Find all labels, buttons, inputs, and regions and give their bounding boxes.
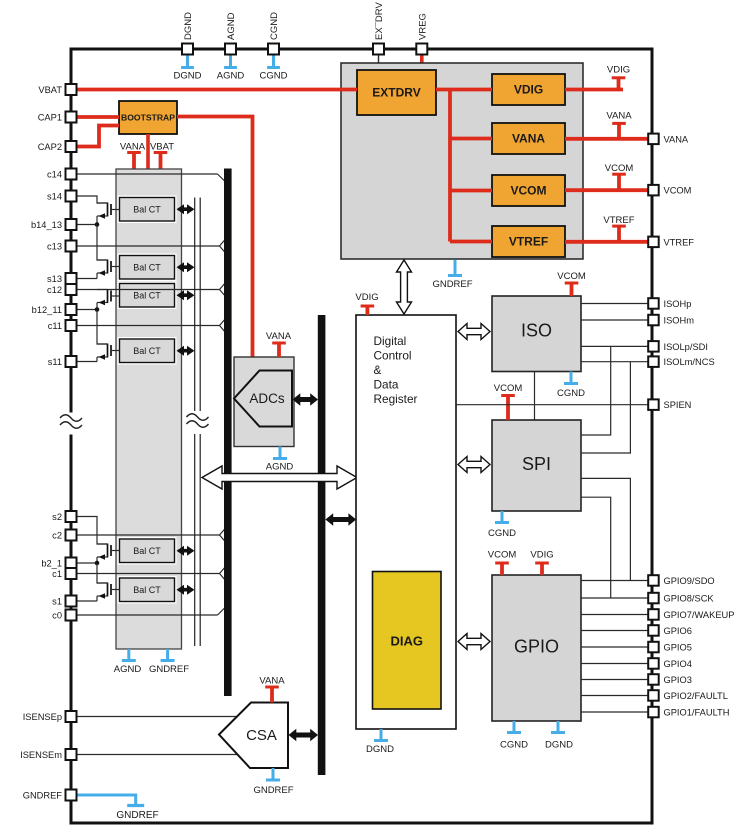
svg-text:CAP2: CAP2	[38, 142, 62, 152]
svg-text:DGND: DGND	[183, 12, 194, 40]
svg-text:VDIG: VDIG	[514, 83, 543, 97]
svg-text:c2: c2	[52, 531, 62, 541]
svg-text:VCOM: VCOM	[664, 186, 692, 196]
svg-text:CGND: CGND	[488, 528, 516, 539]
svg-text:VCOM: VCOM	[557, 271, 586, 282]
svg-text:DGND: DGND	[366, 744, 394, 755]
svg-text:AGND: AGND	[266, 462, 294, 473]
svg-text:GPIO2/FAULTL: GPIO2/FAULTL	[664, 691, 728, 701]
svg-text:CGND: CGND	[269, 12, 280, 40]
svg-text:VDIG: VDIG	[607, 65, 630, 76]
svg-text:AGND: AGND	[114, 664, 142, 675]
svg-text:c13: c13	[47, 242, 62, 252]
svg-text:VANA: VANA	[664, 134, 689, 144]
svg-text:ISENSEm: ISENSEm	[20, 750, 62, 760]
svg-text:VCOM: VCOM	[511, 184, 547, 198]
svg-text:CGND: CGND	[557, 388, 585, 399]
svg-text:c11: c11	[48, 321, 62, 331]
svg-text:SPIEN: SPIEN	[664, 400, 692, 410]
svg-text:Digital: Digital	[374, 334, 407, 348]
svg-text:BOOTSTRAP: BOOTSTRAP	[121, 113, 175, 123]
svg-text:DGND: DGND	[545, 740, 573, 751]
svg-text:ISENSEp: ISENSEp	[23, 712, 62, 722]
svg-text:Bal CT: Bal CT	[133, 263, 161, 273]
svg-text:CAP1: CAP1	[38, 113, 62, 123]
svg-text:VBAT: VBAT	[150, 142, 174, 153]
svg-text:s1: s1	[52, 597, 62, 607]
svg-text:SPI: SPI	[522, 454, 551, 474]
svg-text:s14: s14	[47, 192, 62, 202]
svg-text:ISOLm/NCS: ISOLm/NCS	[664, 357, 715, 367]
svg-text:s2: s2	[52, 512, 62, 522]
svg-text:VANA: VANA	[120, 142, 146, 153]
svg-text:Register: Register	[374, 392, 418, 406]
svg-text:b2_1: b2_1	[41, 559, 62, 569]
svg-text:CGND: CGND	[260, 71, 288, 82]
svg-text:Data: Data	[374, 378, 399, 392]
svg-text:VANA: VANA	[266, 331, 292, 342]
svg-text:GNDREF: GNDREF	[253, 785, 293, 796]
svg-text:b12_11: b12_11	[32, 305, 62, 315]
svg-text:EXTDRV: EXTDRV	[372, 86, 420, 100]
svg-text:VANA: VANA	[259, 676, 285, 687]
svg-text:GPIO5: GPIO5	[664, 643, 692, 653]
svg-text:c0: c0	[52, 611, 62, 621]
svg-text:VTREF: VTREF	[664, 237, 695, 247]
svg-text:VDIG: VDIG	[530, 550, 553, 561]
svg-text:GPIO4: GPIO4	[664, 659, 692, 669]
svg-text:c14: c14	[47, 170, 62, 180]
svg-text:GPIO1/FAULTH: GPIO1/FAULTH	[664, 708, 730, 718]
svg-text:VANA: VANA	[512, 132, 545, 146]
svg-text:&: &	[374, 363, 382, 377]
svg-text:GPIO9/SDO: GPIO9/SDO	[664, 576, 715, 586]
svg-text:VDIG: VDIG	[355, 292, 378, 303]
svg-text:ADCs: ADCs	[249, 391, 285, 406]
svg-text:VCOM: VCOM	[488, 550, 517, 561]
svg-text:VCOM: VCOM	[494, 383, 523, 394]
svg-text:GPIO7/WAKEUP: GPIO7/WAKEUP	[664, 610, 735, 620]
svg-text:VREG: VREG	[417, 13, 428, 40]
svg-text:AGND: AGND	[217, 71, 245, 82]
svg-text:Bal CT: Bal CT	[133, 205, 161, 215]
svg-text:c1: c1	[52, 569, 62, 579]
svg-text:VTREF: VTREF	[603, 215, 634, 226]
svg-text:CSA: CSA	[246, 727, 277, 744]
svg-text:s13: s13	[47, 274, 62, 284]
svg-text:GNDREF: GNDREF	[23, 791, 63, 801]
svg-text:GPIO8/SCK: GPIO8/SCK	[664, 594, 715, 604]
svg-text:s11: s11	[48, 357, 62, 367]
svg-text:EX¯DRV: EX¯DRV	[374, 2, 385, 40]
svg-text:VBAT: VBAT	[38, 85, 62, 95]
svg-text:GPIO: GPIO	[514, 637, 559, 657]
svg-text:VTREF: VTREF	[509, 235, 548, 249]
svg-text:VANA: VANA	[606, 110, 632, 121]
svg-text:b14_13: b14_13	[31, 220, 62, 230]
svg-text:ISOHm: ISOHm	[664, 316, 695, 326]
svg-text:ISO: ISO	[521, 321, 552, 341]
svg-text:GPIO3: GPIO3	[664, 675, 692, 685]
svg-text:CGND: CGND	[500, 740, 528, 751]
svg-text:Bal CT: Bal CT	[133, 346, 161, 356]
svg-text:Bal CT: Bal CT	[133, 585, 161, 595]
svg-text:DGND: DGND	[174, 71, 202, 82]
svg-text:c12: c12	[47, 285, 62, 295]
svg-text:DIAG: DIAG	[390, 634, 423, 649]
svg-text:Control: Control	[374, 348, 412, 362]
svg-text:GNDREF: GNDREF	[432, 279, 472, 290]
svg-text:ISOLp/SDI: ISOLp/SDI	[664, 342, 708, 352]
svg-text:Bal CT: Bal CT	[133, 546, 161, 556]
svg-text:GNDREF: GNDREF	[116, 810, 158, 821]
svg-text:GPIO6: GPIO6	[664, 626, 692, 636]
svg-text:AGND: AGND	[226, 12, 237, 40]
svg-text:GNDREF: GNDREF	[149, 664, 189, 675]
svg-text:ISOHp: ISOHp	[664, 299, 692, 309]
svg-text:VCOM: VCOM	[605, 163, 634, 174]
svg-text:Bal CT: Bal CT	[133, 291, 161, 301]
